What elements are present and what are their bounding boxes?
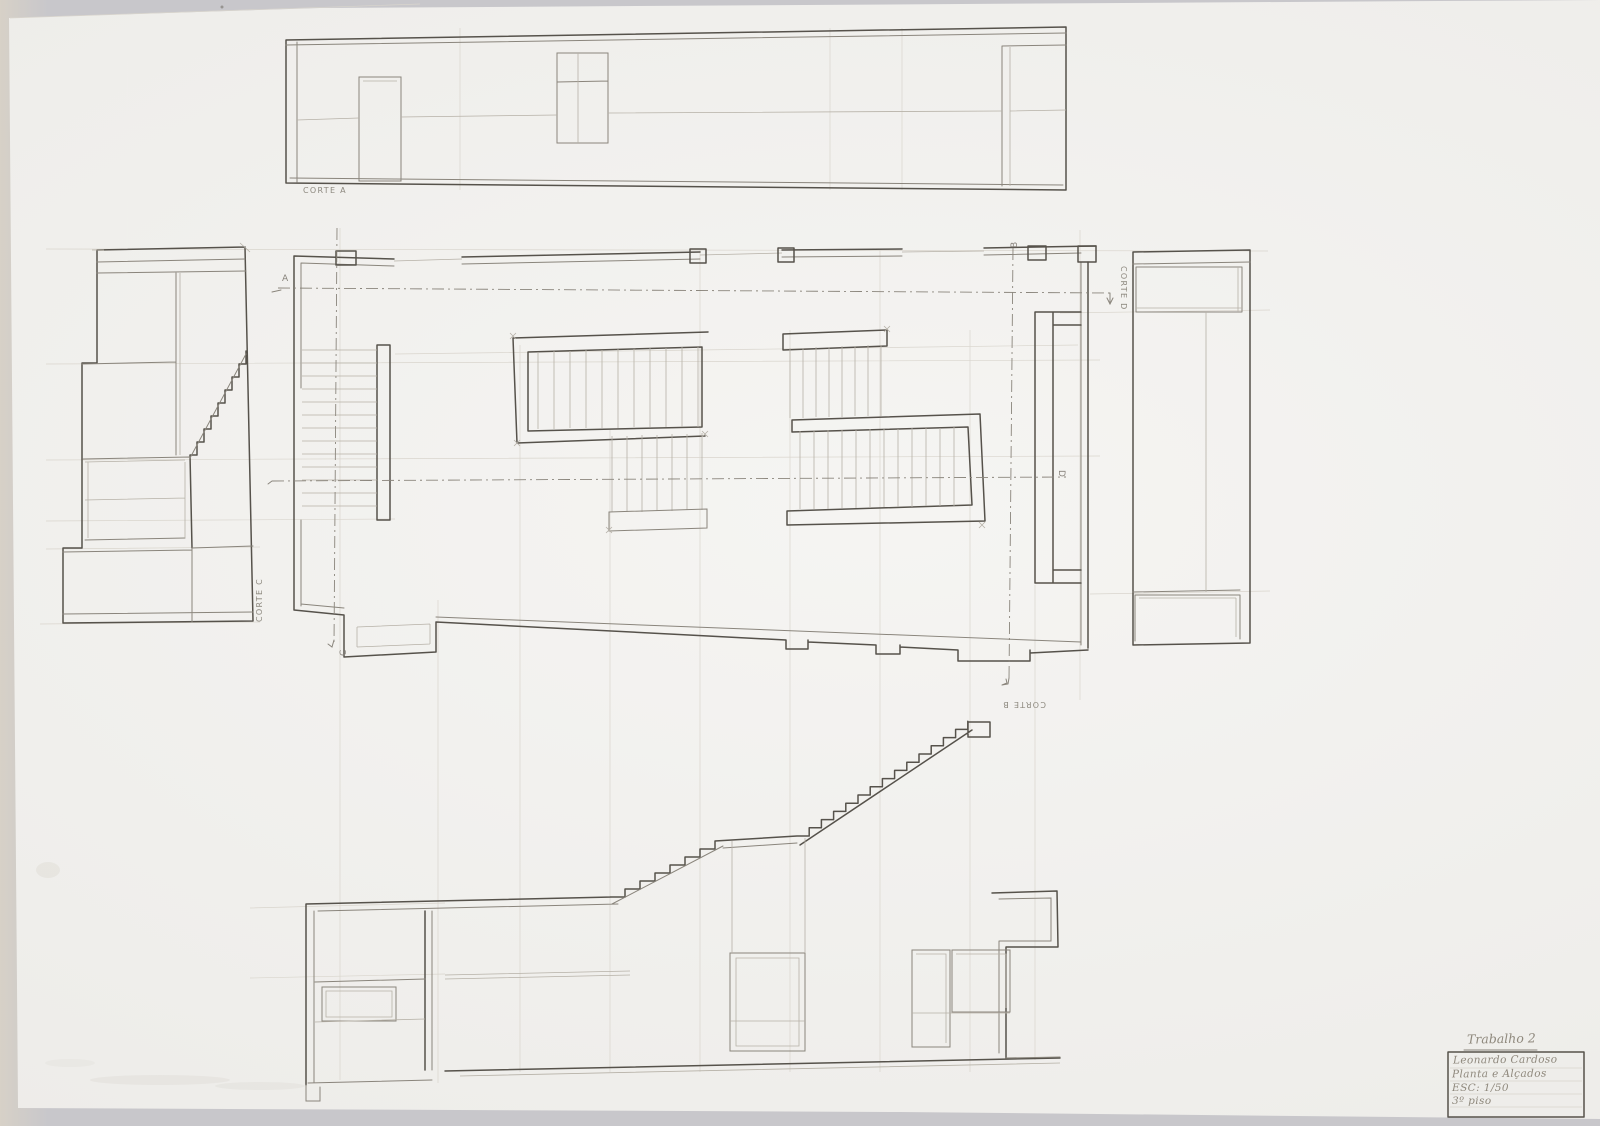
stairwell-left-walls bbox=[513, 332, 708, 443]
corte-a-outline bbox=[286, 27, 1066, 190]
plan-stairwell-right bbox=[783, 326, 985, 528]
smudge bbox=[45, 1059, 95, 1067]
corte-c-interior bbox=[63, 259, 253, 622]
corte-d-elevation bbox=[1133, 250, 1250, 645]
corte-c-outline bbox=[63, 247, 253, 623]
plan-interior-wall-faces bbox=[301, 253, 1081, 645]
cut-line-d bbox=[272, 477, 1066, 481]
corte-d-details bbox=[1136, 267, 1242, 637]
stairwell-right-flight-treads bbox=[790, 345, 881, 418]
floor-designation: 3º piso bbox=[1452, 1095, 1492, 1107]
corte-b-details bbox=[315, 838, 1060, 1076]
section-marker-d: D bbox=[1056, 470, 1066, 477]
plan-columns bbox=[336, 246, 1096, 265]
plan-exterior-walls bbox=[294, 246, 1096, 661]
side-stair-treads bbox=[302, 350, 377, 506]
smudge bbox=[215, 1082, 305, 1090]
section-marker-b: B bbox=[1010, 242, 1020, 248]
plan-right-void-bracket bbox=[1035, 312, 1081, 583]
stairwell-left-landing bbox=[609, 509, 707, 531]
corte-c-label: CORTE C bbox=[255, 578, 264, 622]
corte-b-section bbox=[306, 721, 1060, 1101]
cut-line-a bbox=[278, 288, 1110, 293]
cut-line-c-end bbox=[328, 640, 334, 647]
assignment-title: Trabalho 2 bbox=[1467, 1030, 1536, 1046]
corte-b-label: CORTE B bbox=[1002, 700, 1046, 709]
side-stair-wall bbox=[377, 345, 390, 520]
ink-speck bbox=[221, 6, 224, 9]
drawing-scale: ESC: 1/50 bbox=[1452, 1082, 1509, 1094]
stairwell-left-flight-treads bbox=[612, 433, 702, 512]
pencil-drawing-canvas bbox=[0, 0, 1600, 1126]
smudge bbox=[36, 862, 60, 878]
stairwell-right-treads bbox=[800, 427, 954, 509]
corte-d-outline bbox=[1133, 250, 1250, 645]
corte-a-elevation bbox=[286, 27, 1066, 190]
cut-line-b-end bbox=[1002, 678, 1009, 685]
stairwell-left-treads bbox=[538, 347, 698, 429]
corte-b-walls bbox=[306, 843, 1060, 1101]
corte-d-label: CORTE D bbox=[1119, 266, 1128, 311]
author-name: Leonardo Cardoso bbox=[1453, 1054, 1558, 1067]
corte-d-interior bbox=[1133, 262, 1250, 641]
cut-line-d-end bbox=[268, 481, 272, 484]
corte-b-heavy-outline bbox=[306, 721, 1060, 1085]
section-marker-a: A bbox=[282, 274, 288, 284]
corner-tick-marks bbox=[510, 333, 708, 533]
drawing-subject: Planta e Alçados bbox=[1452, 1068, 1547, 1081]
plan-side-stair bbox=[302, 345, 390, 520]
section-marker-c: C bbox=[339, 650, 349, 656]
corte-a-label: CORTE A bbox=[303, 186, 347, 195]
plan-window-openings bbox=[357, 251, 984, 647]
corte-c-elevation bbox=[63, 243, 253, 623]
corte-a-details bbox=[297, 47, 1066, 186]
corte-a-walls bbox=[286, 33, 1066, 186]
smudge bbox=[90, 1075, 230, 1085]
scanned-drawing-sheet: CORTE A CORTE C CORTE D CORTE B A B C D … bbox=[0, 0, 1600, 1126]
cut-line-c bbox=[334, 228, 337, 645]
cut-line-b bbox=[1009, 248, 1013, 680]
